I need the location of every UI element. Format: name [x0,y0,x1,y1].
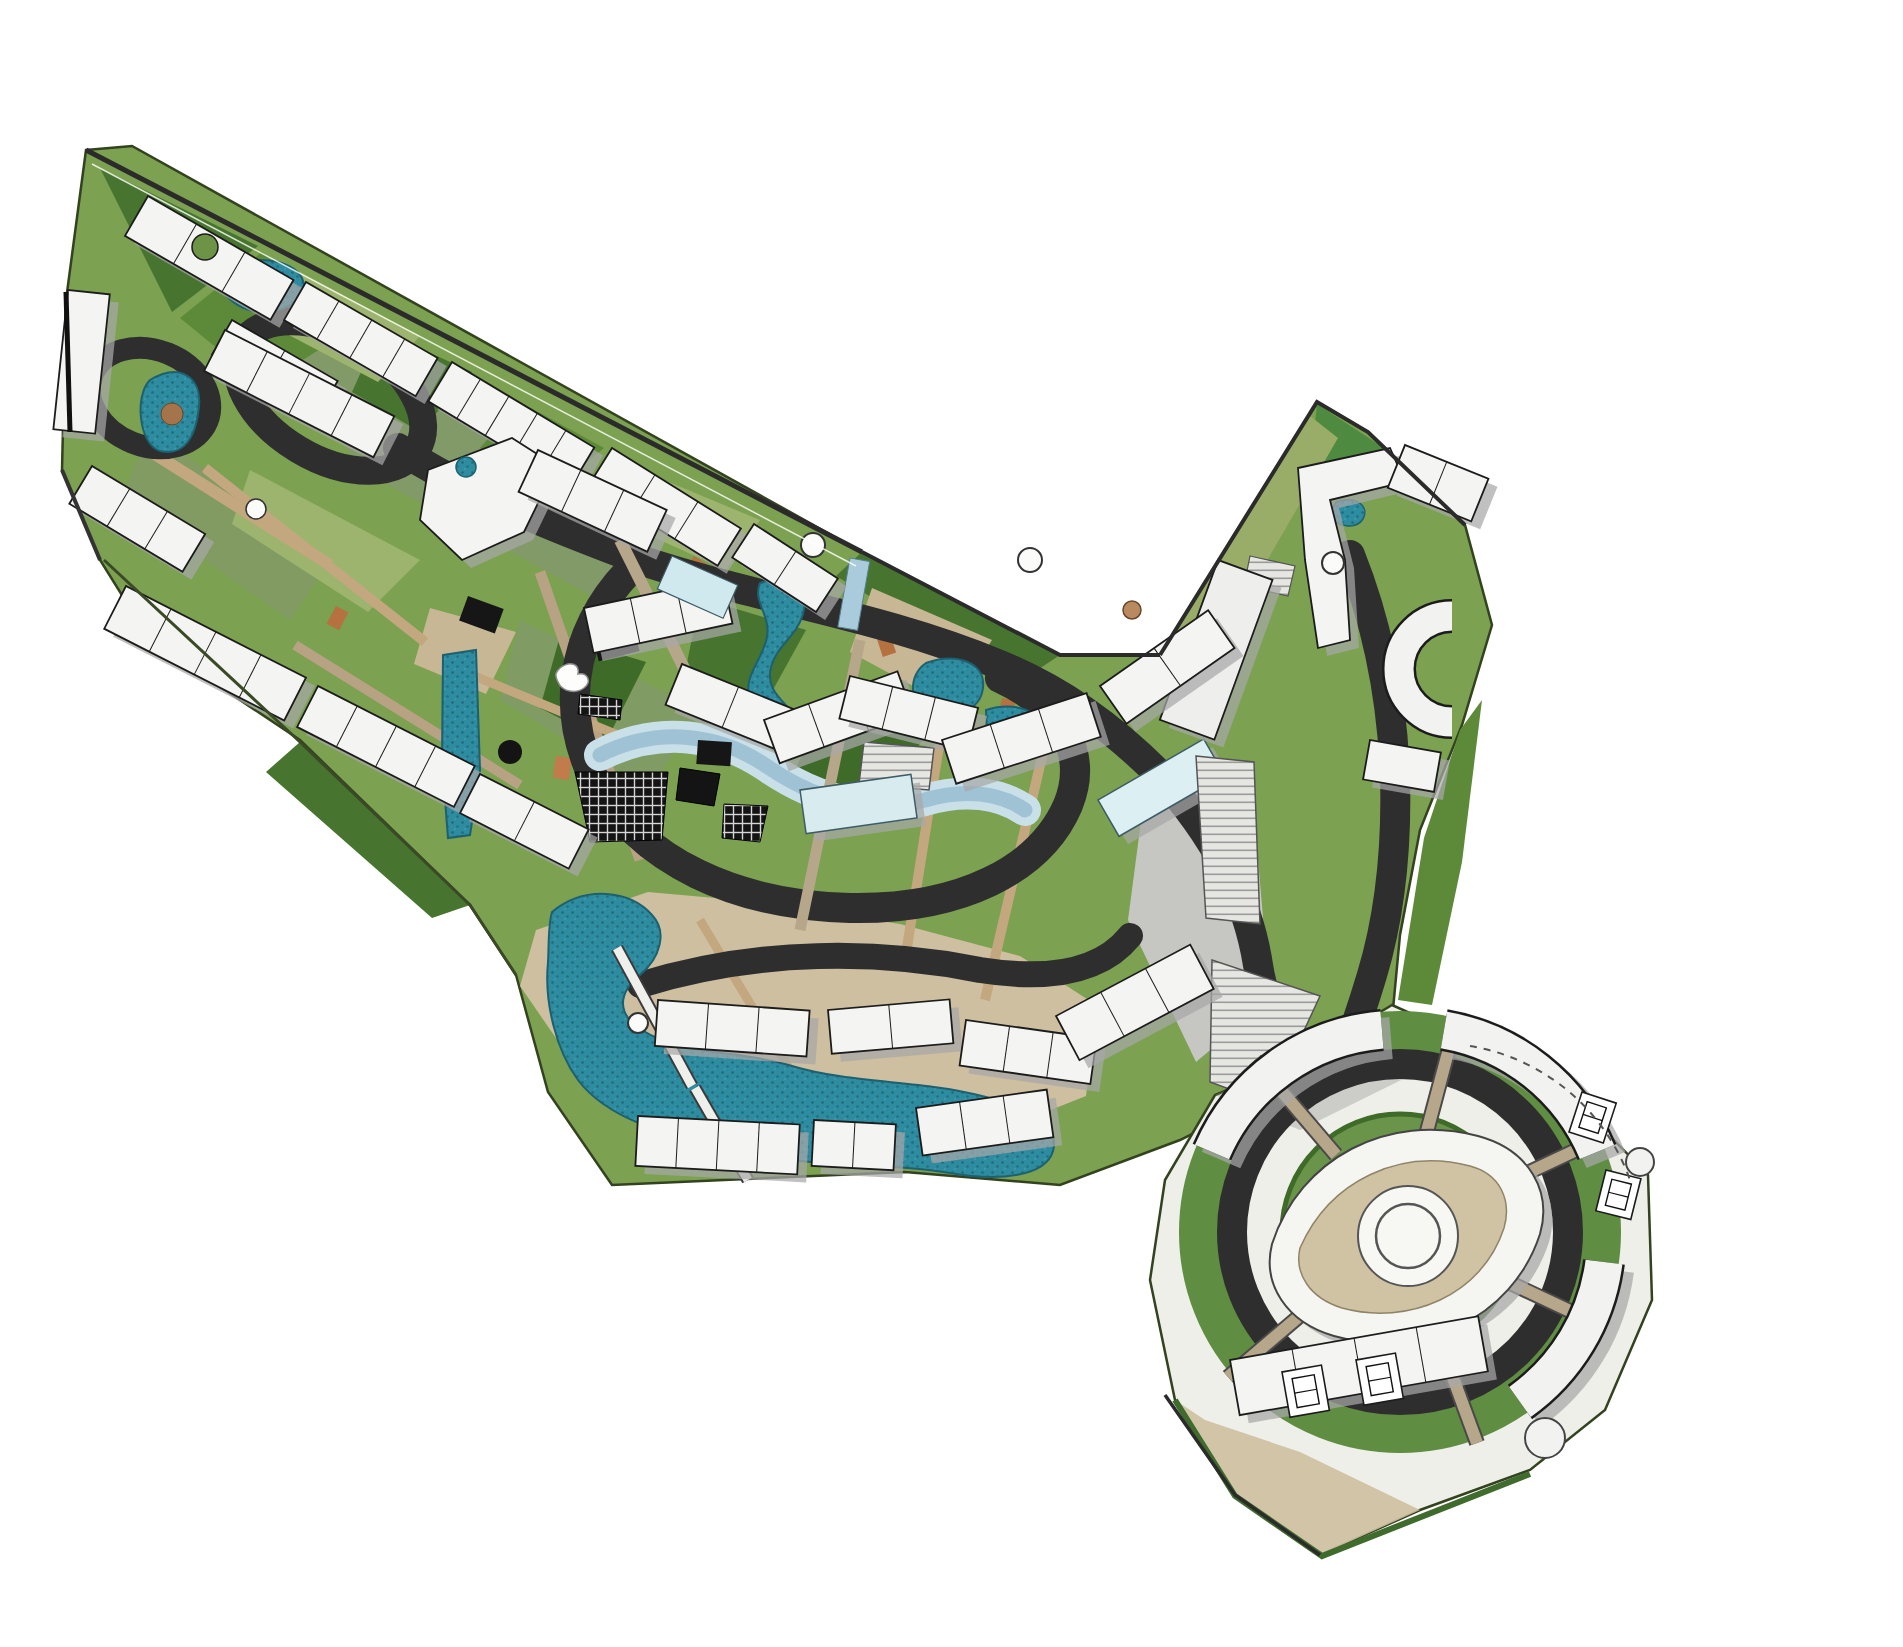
trellis-slab [676,768,720,806]
plaza-circle [246,499,266,519]
trellis-fan [722,804,768,842]
pod-circle [1525,1418,1565,1458]
plaza-circle [801,533,825,557]
plaza-circle [1322,552,1344,574]
plaza-circle-brown [1123,601,1141,619]
plaza-circle-dark [498,740,522,764]
masterplan-svg [0,0,1903,1647]
pool-circle [456,457,476,477]
eye-pupil [1358,1186,1458,1286]
site-plan-viewport [0,0,1903,1647]
pond-island [161,403,183,425]
stairs-hatch-corridor [1196,756,1260,924]
trellis-fan [575,772,668,842]
building-slab [655,1000,810,1056]
building-hole-lawn [192,234,218,260]
trellis-core [696,740,732,766]
plaza-circle [628,1013,648,1033]
plaza-circle [1018,548,1042,572]
pod-circle [1626,1148,1654,1176]
masterplan-layers [53,146,1654,1556]
path-chip-orange [553,756,572,780]
